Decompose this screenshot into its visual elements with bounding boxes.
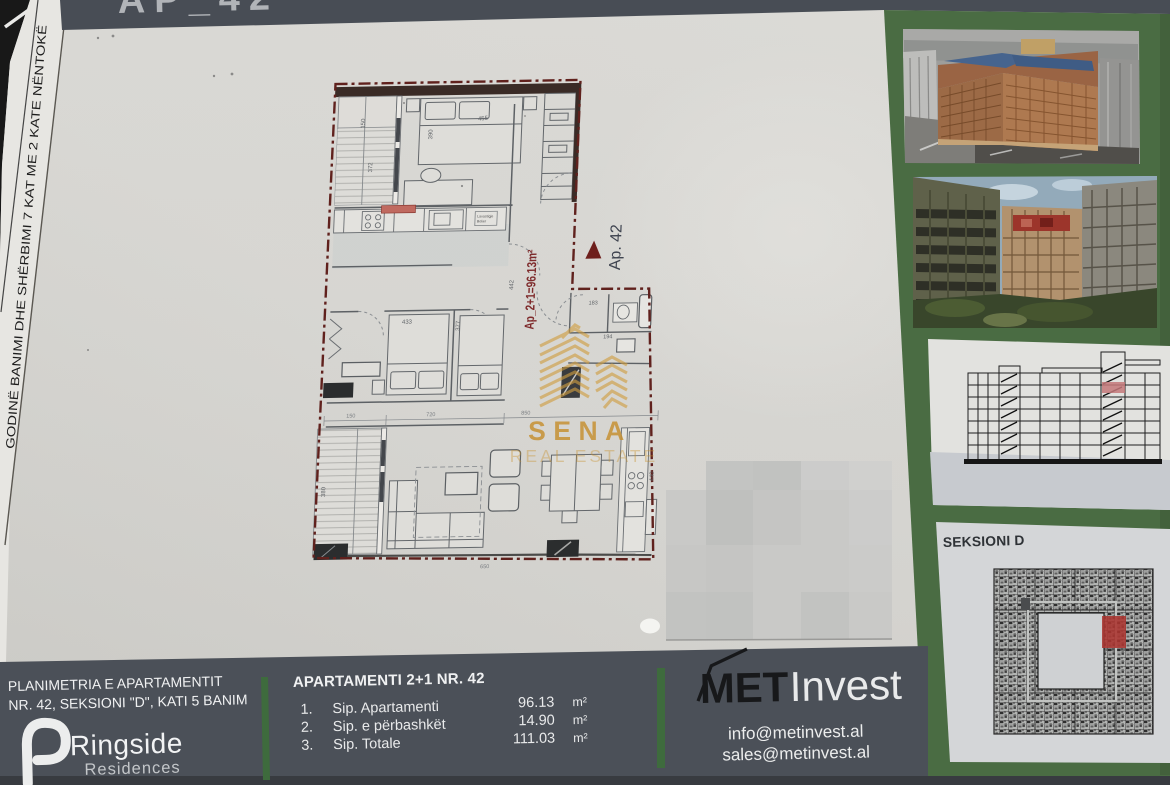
svg-text:377: 377: [456, 320, 462, 331]
svg-text:m²: m²: [573, 713, 588, 727]
svg-text:442: 442: [509, 279, 515, 290]
svg-text:3.: 3.: [301, 738, 313, 754]
svg-text:380: 380: [321, 486, 327, 497]
svg-text:Invest: Invest: [789, 661, 902, 710]
svg-text:2.: 2.: [301, 720, 313, 736]
svg-text:m²: m²: [572, 695, 587, 709]
svg-text:Lavastigje: Lavastigje: [477, 214, 493, 218]
svg-text:MET: MET: [699, 663, 789, 712]
svg-text:SEKSIONI D: SEKSIONI D: [943, 533, 1025, 550]
svg-text:150: 150: [346, 414, 355, 420]
svg-text:m²: m²: [573, 731, 588, 745]
svg-text:440: 440: [649, 471, 655, 482]
svg-text:Ap. 42: Ap. 42: [607, 224, 626, 270]
svg-text:REAL ESTATE: REAL ESTATE: [510, 446, 658, 466]
svg-text:AP_42: AP_42: [117, 0, 279, 22]
svg-text:Bolier: Bolier: [477, 219, 487, 223]
svg-text:Ringside: Ringside: [70, 728, 184, 762]
svg-text:Sip. Apartamenti: Sip. Apartamenti: [332, 699, 439, 717]
svg-text:Sip. Totale: Sip. Totale: [333, 736, 401, 753]
svg-text:1.: 1.: [300, 702, 312, 718]
svg-text:info@metinvest.al: info@metinvest.al: [728, 722, 864, 744]
svg-text:111.03: 111.03: [513, 731, 556, 748]
svg-text:720: 720: [426, 412, 435, 418]
svg-text:455: 455: [478, 116, 489, 123]
svg-text:390: 390: [428, 129, 434, 140]
svg-text:14.90: 14.90: [518, 713, 555, 730]
svg-text:sales@metinvest.al: sales@metinvest.al: [722, 742, 870, 764]
svg-text:194: 194: [603, 334, 612, 340]
svg-text:650: 650: [480, 564, 489, 570]
svg-text:Residences: Residences: [84, 759, 181, 779]
svg-text:SENA: SENA: [528, 416, 632, 446]
svg-text:433: 433: [402, 320, 413, 326]
svg-text:Sip. e përbashkët: Sip. e përbashkët: [333, 717, 446, 735]
svg-text:96.13: 96.13: [518, 695, 555, 712]
svg-text:372: 372: [368, 162, 374, 173]
svg-text:183: 183: [588, 300, 597, 306]
svg-text:150: 150: [361, 118, 367, 129]
